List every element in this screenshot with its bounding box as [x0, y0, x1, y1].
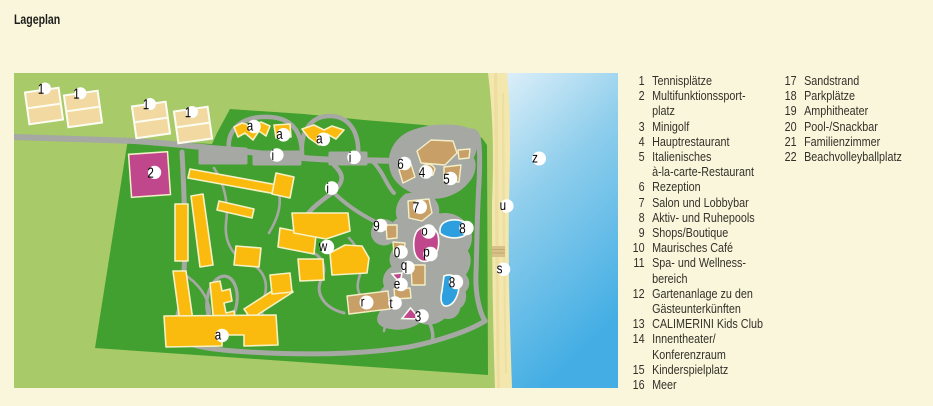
svg-text:w: w — [318, 238, 328, 255]
svg-text:a: a — [316, 130, 323, 147]
svg-text:e: e — [394, 275, 401, 292]
svg-text:1: 1 — [143, 96, 150, 113]
svg-text:5: 5 — [443, 171, 450, 188]
svg-text:7: 7 — [413, 199, 420, 216]
svg-text:s: s — [497, 260, 503, 277]
svg-text:1: 1 — [185, 104, 192, 121]
svg-text:8: 8 — [459, 220, 466, 237]
svg-text:o: o — [421, 222, 428, 239]
svg-text:0: 0 — [394, 244, 401, 261]
svg-text:8: 8 — [449, 274, 456, 291]
svg-text:r: r — [361, 293, 365, 310]
svg-text:z: z — [532, 149, 538, 166]
svg-text:a: a — [215, 326, 222, 343]
svg-text:i: i — [271, 147, 274, 164]
svg-text:3: 3 — [415, 308, 422, 325]
svg-text:i: i — [326, 180, 329, 197]
svg-text:2: 2 — [147, 164, 154, 181]
svg-text:6: 6 — [397, 156, 404, 173]
svg-text:u: u — [500, 197, 507, 214]
svg-text:1: 1 — [73, 85, 80, 102]
svg-text:1: 1 — [38, 81, 45, 98]
svg-text:p: p — [423, 243, 430, 260]
svg-text:i: i — [349, 149, 352, 166]
svg-text:t: t — [389, 295, 393, 312]
svg-text:a: a — [276, 126, 283, 143]
svg-text:4: 4 — [419, 164, 426, 181]
svg-text:a: a — [247, 117, 254, 134]
svg-text:q: q — [401, 257, 408, 274]
svg-text:9: 9 — [373, 218, 380, 235]
